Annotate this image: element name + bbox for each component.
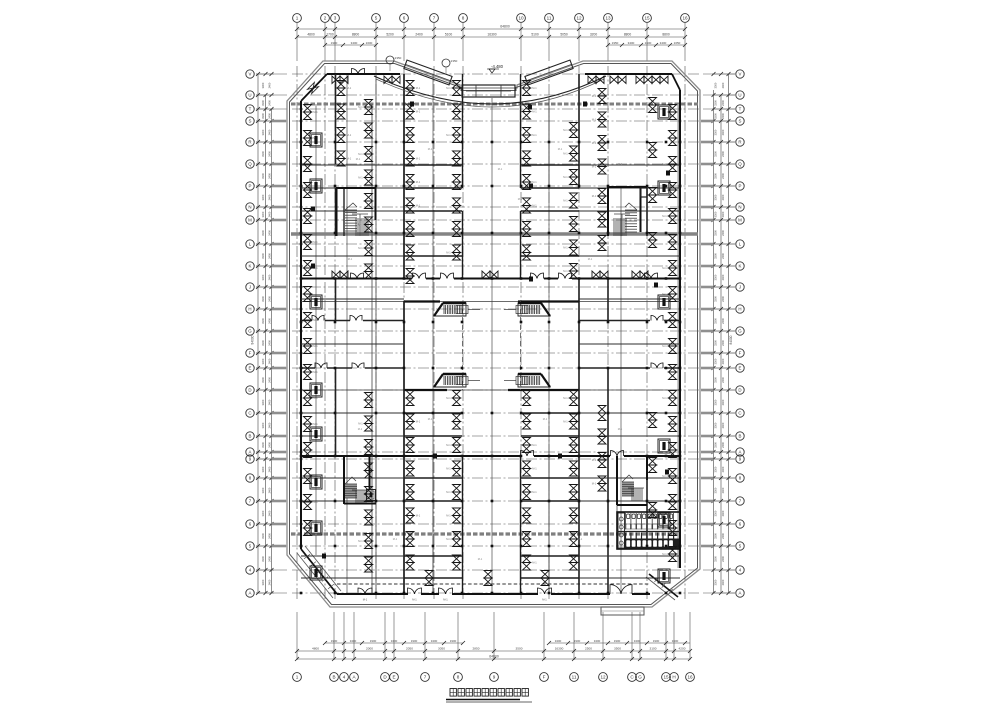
svg-text:M-1: M-1 xyxy=(428,147,433,151)
svg-text:3300: 3300 xyxy=(714,253,718,259)
svg-text:N: N xyxy=(248,205,251,210)
svg-text:M-1: M-1 xyxy=(618,427,623,431)
svg-text:2400: 2400 xyxy=(721,211,725,217)
svg-text:E: E xyxy=(739,366,742,371)
svg-text:16300: 16300 xyxy=(487,33,496,37)
svg-text:M-1: M-1 xyxy=(428,417,433,421)
svg-text:3300: 3300 xyxy=(714,113,718,119)
svg-text:3300: 3300 xyxy=(261,151,265,157)
svg-text:2400: 2400 xyxy=(721,377,725,383)
svg-text:11: 11 xyxy=(547,16,552,21)
svg-text:8: 8 xyxy=(457,675,460,680)
svg-text:M-1: M-1 xyxy=(563,152,568,156)
svg-text:M-1: M-1 xyxy=(542,598,547,602)
svg-text:3400: 3400 xyxy=(672,639,679,643)
svg-text:3300: 3300 xyxy=(714,487,718,493)
svg-text:R: R xyxy=(248,140,251,145)
svg-text:A: A xyxy=(739,591,742,596)
svg-text:M-1: M-1 xyxy=(313,500,318,504)
svg-text:M-1: M-1 xyxy=(416,420,421,424)
svg-text:2500: 2500 xyxy=(585,647,592,651)
svg-text:2400: 2400 xyxy=(415,33,423,37)
svg-text:3300: 3300 xyxy=(261,579,265,585)
svg-text:2400: 2400 xyxy=(721,151,725,157)
svg-text:M-1: M-1 xyxy=(358,422,363,426)
svg-text:2400: 2400 xyxy=(267,211,271,217)
svg-text:8800: 8800 xyxy=(662,33,670,37)
svg-text:3300: 3300 xyxy=(714,579,718,585)
svg-text:2350: 2350 xyxy=(451,59,458,63)
svg-text:2400: 2400 xyxy=(267,113,271,119)
svg-text:4200: 4200 xyxy=(679,647,686,651)
svg-text:E: E xyxy=(392,675,395,680)
svg-text:2400: 2400 xyxy=(267,533,271,539)
svg-text:12: 12 xyxy=(600,675,606,680)
svg-text:3400: 3400 xyxy=(634,639,641,643)
svg-text:3300: 3300 xyxy=(261,194,265,200)
svg-text:M-1: M-1 xyxy=(358,539,363,543)
svg-text:2400: 2400 xyxy=(721,129,725,135)
svg-text:3300: 3300 xyxy=(714,318,718,324)
svg-text:M-1: M-1 xyxy=(478,557,483,561)
svg-text:3300: 3300 xyxy=(714,442,718,448)
svg-text:M-1: M-1 xyxy=(618,162,623,166)
svg-text:5050: 5050 xyxy=(560,33,568,37)
svg-text:2350: 2350 xyxy=(395,56,402,60)
svg-text:3300: 3300 xyxy=(714,510,718,516)
svg-text:M-1: M-1 xyxy=(446,443,451,447)
svg-text:2400: 2400 xyxy=(721,399,725,405)
svg-text:3400: 3400 xyxy=(555,639,562,643)
svg-text:3300: 3300 xyxy=(714,211,718,217)
svg-text:C: C xyxy=(248,411,251,416)
svg-text:3300: 3300 xyxy=(261,510,265,516)
svg-text:-4.480: -4.480 xyxy=(491,64,504,69)
svg-text:3300: 3300 xyxy=(714,274,718,280)
svg-text:8800: 8800 xyxy=(624,33,632,37)
svg-text:F: F xyxy=(739,351,742,356)
svg-text:2400: 2400 xyxy=(721,340,725,346)
svg-text:2400: 2400 xyxy=(267,151,271,157)
svg-text:2400: 2400 xyxy=(267,442,271,448)
svg-text:B: B xyxy=(332,675,335,680)
svg-text:M-1: M-1 xyxy=(347,133,352,137)
svg-text:M-1: M-1 xyxy=(532,86,537,90)
svg-text:M-1: M-1 xyxy=(347,86,352,90)
svg-text:M-1: M-1 xyxy=(563,246,568,250)
svg-text:3300: 3300 xyxy=(714,533,718,539)
svg-text:2400: 2400 xyxy=(721,422,725,428)
svg-text:3300: 3300 xyxy=(714,173,718,179)
svg-text:3300: 3300 xyxy=(261,129,265,135)
svg-text:2400: 2400 xyxy=(721,194,725,200)
svg-text:2400: 2400 xyxy=(721,442,725,448)
svg-text:M-1: M-1 xyxy=(416,180,421,184)
svg-text:5200: 5200 xyxy=(386,33,394,37)
svg-text:M-1: M-1 xyxy=(592,141,597,145)
svg-text:1900: 1900 xyxy=(653,639,660,643)
svg-text:15: 15 xyxy=(663,675,669,680)
svg-text:2400: 2400 xyxy=(721,318,725,324)
svg-text:2400: 2400 xyxy=(721,466,725,472)
svg-text:M-1: M-1 xyxy=(563,420,568,424)
svg-text:M-1: M-1 xyxy=(662,552,667,556)
svg-text:3300: 3300 xyxy=(714,129,718,135)
svg-text:M-1: M-1 xyxy=(416,110,421,114)
svg-text:16: 16 xyxy=(682,16,688,21)
svg-text:A: A xyxy=(249,591,252,596)
svg-text:2400: 2400 xyxy=(267,82,271,88)
svg-text:M-1: M-1 xyxy=(532,443,537,447)
svg-text:Q: Q xyxy=(248,162,252,167)
svg-text:64800: 64800 xyxy=(489,655,499,659)
svg-text:G: G xyxy=(638,675,642,680)
svg-text:M-1: M-1 xyxy=(532,490,537,494)
svg-text:2400: 2400 xyxy=(267,129,271,135)
svg-text:3300: 3300 xyxy=(261,230,265,236)
svg-text:C: C xyxy=(738,411,741,416)
svg-text:3300: 3300 xyxy=(261,296,265,302)
svg-text:2000: 2000 xyxy=(366,647,373,651)
svg-text:M-1: M-1 xyxy=(662,474,667,478)
svg-text:3300: 3300 xyxy=(261,422,265,428)
svg-text:H: H xyxy=(672,675,675,680)
svg-text:2400: 2400 xyxy=(721,296,725,302)
svg-text:M-1: M-1 xyxy=(532,110,537,114)
svg-text:M-1: M-1 xyxy=(563,175,568,179)
svg-text:A: A xyxy=(249,450,252,455)
svg-text:M-1: M-1 xyxy=(446,133,451,137)
svg-text:M-1: M-1 xyxy=(412,598,417,602)
svg-text:M-1: M-1 xyxy=(313,318,318,322)
svg-text:4: 4 xyxy=(343,675,346,680)
svg-text:M-1: M-1 xyxy=(592,482,597,486)
svg-text:3400: 3400 xyxy=(594,639,601,643)
svg-text:16: 16 xyxy=(687,675,693,680)
svg-text:2400: 2400 xyxy=(721,533,725,539)
svg-text:M-1: M-1 xyxy=(446,251,451,255)
svg-text:3300: 3300 xyxy=(261,556,265,562)
svg-text:2400: 2400 xyxy=(267,487,271,493)
svg-text:2400: 2400 xyxy=(721,556,725,562)
svg-text:4800: 4800 xyxy=(307,33,315,37)
svg-text:M-1: M-1 xyxy=(393,537,398,541)
svg-text:M-1: M-1 xyxy=(563,269,568,273)
svg-text:V: V xyxy=(249,72,252,77)
svg-text:B: B xyxy=(739,434,742,439)
svg-text:3300: 3300 xyxy=(261,377,265,383)
svg-text:2400: 2400 xyxy=(721,82,725,88)
svg-text:M-1: M-1 xyxy=(563,199,568,203)
svg-text:M-1: M-1 xyxy=(313,370,318,374)
svg-text:3300: 3300 xyxy=(714,399,718,405)
svg-text:K: K xyxy=(249,264,252,269)
svg-text:2400: 2400 xyxy=(267,358,271,364)
svg-text:2400: 2400 xyxy=(721,487,725,493)
svg-text:3300: 3300 xyxy=(714,422,718,428)
svg-text:M-1: M-1 xyxy=(358,223,363,227)
svg-text:1900: 1900 xyxy=(411,639,418,643)
svg-text:M-1: M-1 xyxy=(532,467,537,471)
svg-text:2400: 2400 xyxy=(721,113,725,119)
svg-text:2400: 2400 xyxy=(721,230,725,236)
svg-text:2400: 2400 xyxy=(267,466,271,472)
svg-text:3300: 3300 xyxy=(261,274,265,280)
svg-text:M-1: M-1 xyxy=(416,157,421,161)
svg-text:M-1: M-1 xyxy=(446,537,451,541)
svg-text:M-1: M-1 xyxy=(662,396,667,400)
svg-text:3300: 3300 xyxy=(261,253,265,259)
svg-text:2400: 2400 xyxy=(267,100,271,106)
svg-text:M-1: M-1 xyxy=(543,417,548,421)
svg-text:M-1: M-1 xyxy=(443,598,448,602)
svg-text:M-1: M-1 xyxy=(588,257,593,261)
svg-text:2400: 2400 xyxy=(267,173,271,179)
svg-text:3400: 3400 xyxy=(351,41,358,45)
svg-text:M-1: M-1 xyxy=(532,561,537,565)
svg-text:2400: 2400 xyxy=(721,173,725,179)
svg-text:U: U xyxy=(738,93,741,98)
svg-text:3300: 3300 xyxy=(261,442,265,448)
svg-text:3300: 3300 xyxy=(261,487,265,493)
svg-text:2400: 2400 xyxy=(267,274,271,280)
svg-text:3300: 3300 xyxy=(714,194,718,200)
svg-text:1950: 1950 xyxy=(612,41,619,45)
svg-text:M-1: M-1 xyxy=(498,167,503,171)
svg-text:3: 3 xyxy=(334,16,337,21)
svg-text:U: U xyxy=(248,93,251,98)
svg-text:M-1: M-1 xyxy=(416,204,421,208)
svg-text:2400: 2400 xyxy=(267,579,271,585)
svg-text:S: S xyxy=(739,119,742,124)
svg-text:F: F xyxy=(249,351,252,356)
svg-text:12: 12 xyxy=(576,16,582,21)
svg-text:M-1: M-1 xyxy=(347,157,352,161)
svg-text:2400: 2400 xyxy=(721,579,725,585)
svg-text:2400: 2400 xyxy=(267,296,271,302)
svg-text:5: 5 xyxy=(375,16,378,21)
svg-text:3300: 3300 xyxy=(714,358,718,364)
svg-text:1900: 1900 xyxy=(450,639,457,643)
svg-text:6: 6 xyxy=(403,16,406,21)
svg-text:M-1: M-1 xyxy=(662,214,667,218)
svg-text:1900: 1900 xyxy=(331,639,338,643)
svg-text:3300: 3300 xyxy=(714,82,718,88)
svg-text:3300: 3300 xyxy=(714,556,718,562)
svg-text:H: H xyxy=(248,307,251,312)
svg-text:T: T xyxy=(249,107,252,112)
svg-text:R: R xyxy=(738,140,741,145)
svg-text:M-1: M-1 xyxy=(532,180,537,184)
svg-text:3300: 3300 xyxy=(261,340,265,346)
svg-text:3400: 3400 xyxy=(391,639,398,643)
svg-text:M-1: M-1 xyxy=(416,86,421,90)
svg-text:S: S xyxy=(249,119,252,124)
svg-text:5100: 5100 xyxy=(531,33,539,37)
svg-text:M-1: M-1 xyxy=(313,110,318,114)
svg-text:3100: 3100 xyxy=(650,647,657,651)
svg-text:D: D xyxy=(248,388,251,393)
svg-text:3300: 3300 xyxy=(714,340,718,346)
svg-text:2400: 2400 xyxy=(267,556,271,562)
svg-text:M-1: M-1 xyxy=(578,537,583,541)
svg-text:M-1: M-1 xyxy=(446,86,451,90)
svg-text:2400: 2400 xyxy=(721,100,725,106)
svg-text:8: 8 xyxy=(462,16,465,21)
svg-text:3300: 3300 xyxy=(261,173,265,179)
svg-text:N: N xyxy=(738,205,741,210)
svg-text:V: V xyxy=(739,72,742,77)
svg-text:8800: 8800 xyxy=(352,33,360,37)
svg-text:3300: 3300 xyxy=(261,466,265,472)
svg-text:A: A xyxy=(739,450,742,455)
svg-text:M: M xyxy=(738,218,742,223)
svg-text:M-1: M-1 xyxy=(592,194,597,198)
svg-text:3300: 3300 xyxy=(714,377,718,383)
svg-text:2400: 2400 xyxy=(267,253,271,259)
svg-text:Q: Q xyxy=(738,162,742,167)
svg-text:M: M xyxy=(248,218,252,223)
svg-text:2400: 2400 xyxy=(267,340,271,346)
svg-text:5100: 5100 xyxy=(445,33,453,37)
svg-text:M-1: M-1 xyxy=(313,422,318,426)
svg-text:M-1: M-1 xyxy=(356,157,361,161)
svg-text:3300: 3300 xyxy=(261,399,265,405)
svg-text:1900: 1900 xyxy=(574,639,581,643)
svg-text:M-1: M-1 xyxy=(446,396,451,400)
svg-text:1900: 1900 xyxy=(370,639,377,643)
svg-text:2400: 2400 xyxy=(267,422,271,428)
svg-text:1600: 1600 xyxy=(366,41,373,45)
svg-text:16300: 16300 xyxy=(555,647,564,651)
svg-text:2400: 2400 xyxy=(267,510,271,516)
svg-text:3200: 3200 xyxy=(590,33,598,37)
svg-text:M-1: M-1 xyxy=(592,94,597,98)
svg-text:2050: 2050 xyxy=(406,647,413,651)
svg-text:2400: 2400 xyxy=(267,377,271,383)
svg-text:2400: 2400 xyxy=(267,230,271,236)
svg-text:G: G xyxy=(248,329,252,334)
svg-text:3300: 3300 xyxy=(261,82,265,88)
svg-text:84000: 84000 xyxy=(729,335,733,344)
svg-text:1: 1 xyxy=(296,16,299,21)
svg-text:3500: 3500 xyxy=(614,647,621,651)
svg-text:1700: 1700 xyxy=(326,33,334,37)
svg-text:3050: 3050 xyxy=(438,647,445,651)
svg-text:M-1: M-1 xyxy=(446,514,451,518)
svg-text:M-1: M-1 xyxy=(358,427,363,431)
svg-text:3300: 3300 xyxy=(261,211,265,217)
svg-text:1: 1 xyxy=(296,675,299,680)
svg-text:J: J xyxy=(739,285,741,290)
svg-text:T: T xyxy=(739,107,742,112)
svg-text:M-1: M-1 xyxy=(358,176,363,180)
svg-text:2400: 2400 xyxy=(267,194,271,200)
svg-text:M-1: M-1 xyxy=(460,227,465,231)
svg-text:3300: 3300 xyxy=(714,296,718,302)
svg-text:3300: 3300 xyxy=(714,100,718,106)
svg-text:M-1: M-1 xyxy=(662,162,667,166)
svg-text:2400: 2400 xyxy=(267,399,271,405)
svg-text:J: J xyxy=(249,285,251,290)
svg-text:3500: 3500 xyxy=(516,647,523,651)
svg-text:M-1: M-1 xyxy=(358,246,363,250)
svg-text:3300: 3300 xyxy=(261,113,265,119)
svg-text:P: P xyxy=(249,184,252,189)
svg-text:3300: 3300 xyxy=(714,230,718,236)
svg-text:M-1: M-1 xyxy=(416,514,421,518)
svg-text:10: 10 xyxy=(518,16,524,21)
svg-text:B: B xyxy=(249,434,252,439)
svg-text:15: 15 xyxy=(644,16,650,21)
svg-text:M-1: M-1 xyxy=(592,458,597,462)
svg-text:1900: 1900 xyxy=(614,639,621,643)
svg-text:M-1: M-1 xyxy=(592,165,597,169)
svg-text:9: 9 xyxy=(493,675,496,680)
svg-text:11: 11 xyxy=(572,675,577,680)
svg-text:3300: 3300 xyxy=(714,151,718,157)
svg-text:3300: 3300 xyxy=(261,318,265,324)
svg-text:2400: 2400 xyxy=(721,510,725,516)
svg-text:64800: 64800 xyxy=(500,25,510,29)
svg-text:1600: 1600 xyxy=(645,41,652,45)
svg-text:M-1: M-1 xyxy=(532,133,537,137)
svg-text:H: H xyxy=(738,307,741,312)
svg-text:7: 7 xyxy=(433,16,436,21)
svg-text:3400: 3400 xyxy=(350,639,357,643)
svg-text:M-1: M-1 xyxy=(558,147,563,151)
svg-text:M-1: M-1 xyxy=(446,467,451,471)
svg-text:2: 2 xyxy=(324,16,327,21)
svg-text:F: F xyxy=(543,675,546,680)
svg-text:M-1: M-1 xyxy=(358,105,363,109)
svg-text:M-1: M-1 xyxy=(662,344,667,348)
svg-text:84000: 84000 xyxy=(251,335,255,344)
svg-text:2400: 2400 xyxy=(267,318,271,324)
svg-text:3400: 3400 xyxy=(660,41,667,45)
svg-text:2400: 2400 xyxy=(721,274,725,280)
svg-text:D: D xyxy=(738,388,741,393)
svg-text:M-1: M-1 xyxy=(563,128,568,132)
svg-text:K: K xyxy=(739,264,742,269)
svg-text:13: 13 xyxy=(605,16,611,21)
svg-text:3300: 3300 xyxy=(261,358,265,364)
svg-text:M-1: M-1 xyxy=(348,257,353,261)
svg-text:2850: 2850 xyxy=(473,647,480,651)
svg-text:3300: 3300 xyxy=(261,100,265,106)
svg-text:M-1: M-1 xyxy=(363,598,368,602)
svg-text:3300: 3300 xyxy=(714,466,718,472)
svg-text:2400: 2400 xyxy=(721,253,725,259)
svg-text:3400: 3400 xyxy=(628,41,635,45)
svg-text:M-1: M-1 xyxy=(563,396,568,400)
svg-text:M-1: M-1 xyxy=(358,152,363,156)
svg-text:G: G xyxy=(738,329,742,334)
svg-text:M-1: M-1 xyxy=(532,204,537,208)
svg-text:1650: 1650 xyxy=(674,41,681,45)
svg-text:M-1: M-1 xyxy=(313,344,318,348)
svg-text:E: E xyxy=(249,366,252,371)
svg-text:7: 7 xyxy=(424,675,427,680)
svg-text:1900: 1900 xyxy=(331,41,338,45)
svg-text:P: P xyxy=(739,184,742,189)
svg-text:3300: 3300 xyxy=(261,533,265,539)
svg-text:M-1: M-1 xyxy=(313,240,318,244)
svg-text:4800: 4800 xyxy=(312,647,319,651)
svg-text:M-1: M-1 xyxy=(518,197,523,201)
svg-text:3400: 3400 xyxy=(431,639,438,643)
svg-text:2400: 2400 xyxy=(721,358,725,364)
